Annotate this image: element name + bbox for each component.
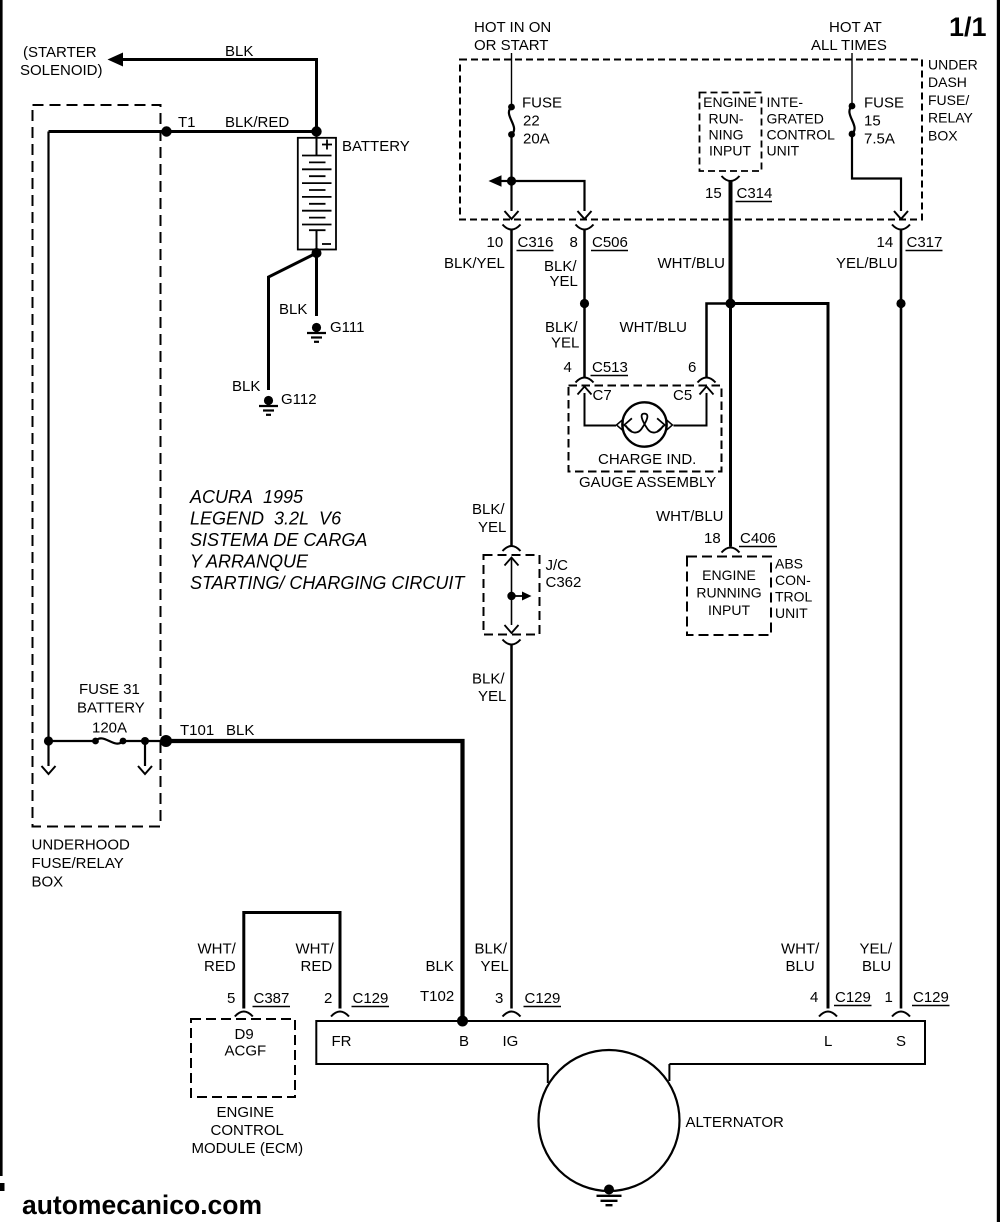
svg-text:BLK: BLK <box>426 958 454 975</box>
svg-text:NING: NING <box>709 127 744 143</box>
svg-text:G112: G112 <box>281 391 317 408</box>
svg-text:BOX: BOX <box>928 128 958 144</box>
svg-text:BLK: BLK <box>279 301 307 318</box>
svg-text:BLK/: BLK/ <box>472 671 505 688</box>
svg-text:4: 4 <box>810 989 818 1006</box>
svg-text:SOLENOID): SOLENOID) <box>20 62 103 79</box>
svg-text:BLU: BLU <box>862 958 891 975</box>
svg-text:C406: C406 <box>740 530 776 547</box>
svg-text:YEL/BLU: YEL/BLU <box>836 255 898 272</box>
svg-text:automecanico.com: automecanico.com <box>22 1190 262 1220</box>
svg-text:20A: 20A <box>523 131 550 148</box>
svg-text:C316: C316 <box>518 234 554 251</box>
svg-text:ENGINE: ENGINE <box>217 1104 275 1121</box>
svg-text:10: 10 <box>487 234 504 251</box>
svg-text:BLK/: BLK/ <box>472 501 505 518</box>
svg-text:T1: T1 <box>178 114 196 131</box>
svg-text:ACURA 1995: ACURA 1995 <box>189 487 304 507</box>
svg-text:YEL/: YEL/ <box>860 941 893 958</box>
svg-text:C387: C387 <box>254 990 290 1007</box>
svg-text:YEL: YEL <box>478 688 506 705</box>
svg-text:C129: C129 <box>525 990 561 1007</box>
svg-text:CON-: CON- <box>775 572 811 588</box>
svg-text:SISTEMA DE CARGA: SISTEMA DE CARGA <box>190 530 367 550</box>
svg-text:BLK/RED: BLK/RED <box>225 114 289 131</box>
svg-text:D9: D9 <box>235 1026 254 1043</box>
svg-text:ABS: ABS <box>775 556 803 572</box>
svg-text:BLK: BLK <box>225 43 253 60</box>
svg-text:FUSE: FUSE <box>864 95 904 112</box>
svg-text:ALL TIMES: ALL TIMES <box>811 37 887 54</box>
svg-text:FR: FR <box>332 1033 352 1050</box>
svg-text:RED: RED <box>204 958 236 975</box>
svg-text:WHT/: WHT/ <box>296 941 335 958</box>
svg-text:14: 14 <box>877 234 894 251</box>
svg-text:FUSE 31: FUSE 31 <box>79 681 140 698</box>
svg-text:C314: C314 <box>737 185 773 202</box>
svg-text:HOT AT: HOT AT <box>829 19 882 36</box>
svg-text:ALTERNATOR: ALTERNATOR <box>686 1114 785 1131</box>
svg-text:1: 1 <box>885 989 893 1006</box>
svg-text:ACGF: ACGF <box>225 1043 267 1060</box>
svg-text:UNDERHOOD: UNDERHOOD <box>32 837 131 854</box>
svg-text:OR START: OR START <box>474 37 548 54</box>
svg-text:BLK/: BLK/ <box>475 941 508 958</box>
svg-text:WHT/: WHT/ <box>198 941 237 958</box>
svg-text:(STARTER: (STARTER <box>23 44 97 61</box>
svg-text:UNIT: UNIT <box>767 143 800 159</box>
svg-text:CONTROL: CONTROL <box>211 1122 284 1139</box>
svg-text:FUSE: FUSE <box>522 95 562 112</box>
svg-text:T102: T102 <box>420 988 454 1005</box>
svg-text:YEL: YEL <box>550 273 578 290</box>
svg-text:7.5A: 7.5A <box>864 131 895 148</box>
svg-text:RUNNING: RUNNING <box>696 585 761 601</box>
svg-text:S: S <box>896 1033 906 1050</box>
svg-text:C5: C5 <box>673 387 692 404</box>
svg-text:YEL: YEL <box>551 335 579 352</box>
svg-text:18: 18 <box>704 530 721 547</box>
svg-text:BATTERY: BATTERY <box>77 700 145 717</box>
svg-text:C129: C129 <box>835 989 871 1006</box>
svg-text:Y ARRANQUE: Y ARRANQUE <box>190 552 309 572</box>
svg-text:C513: C513 <box>592 359 628 376</box>
svg-text:GAUGE ASSEMBLY: GAUGE ASSEMBLY <box>579 474 716 491</box>
svg-text:INTE-: INTE- <box>767 94 804 110</box>
svg-text:FUSE/RELAY: FUSE/RELAY <box>32 855 124 872</box>
svg-text:1/1: 1/1 <box>949 12 987 42</box>
svg-text:22: 22 <box>523 113 540 130</box>
svg-text:WHT/BLU: WHT/BLU <box>620 319 688 336</box>
svg-text:MODULE (ECM): MODULE (ECM) <box>192 1140 304 1157</box>
svg-text:BATTERY: BATTERY <box>342 138 410 155</box>
svg-text:C7: C7 <box>593 387 612 404</box>
svg-text:INPUT: INPUT <box>708 602 750 618</box>
svg-text:WHT/BLU: WHT/BLU <box>656 508 724 525</box>
svg-text:FUSE/: FUSE/ <box>928 92 969 108</box>
svg-text:YEL: YEL <box>481 958 509 975</box>
svg-text:L: L <box>824 1033 832 1050</box>
svg-text:G111: G111 <box>330 319 364 336</box>
svg-text:GRATED: GRATED <box>767 111 824 127</box>
svg-text:RUN-: RUN- <box>709 111 744 127</box>
svg-text:WHT/BLU: WHT/BLU <box>658 255 726 272</box>
svg-text:RELAY: RELAY <box>928 110 974 126</box>
svg-text:4: 4 <box>564 359 572 376</box>
svg-text:INPUT: INPUT <box>709 143 751 159</box>
svg-text:3: 3 <box>495 990 503 1007</box>
svg-text:HOT IN ON: HOT IN ON <box>474 19 551 36</box>
svg-text:15: 15 <box>705 185 722 202</box>
svg-text:CHARGE IND.: CHARGE IND. <box>598 451 696 468</box>
svg-text:RED: RED <box>301 958 333 975</box>
svg-text:UNDER: UNDER <box>928 57 978 73</box>
svg-text:BLK: BLK <box>226 722 254 739</box>
svg-text:15: 15 <box>864 113 881 130</box>
svg-text:CONTROL: CONTROL <box>767 127 836 143</box>
svg-text:B: B <box>459 1033 469 1050</box>
svg-text:WHT/: WHT/ <box>781 941 820 958</box>
svg-text:C317: C317 <box>907 234 943 251</box>
svg-text:6: 6 <box>688 359 696 376</box>
svg-text:LEGEND 3.2L V6: LEGEND 3.2L V6 <box>190 509 342 529</box>
svg-text:YEL: YEL <box>478 519 506 536</box>
svg-text:IG: IG <box>503 1033 519 1050</box>
svg-text:8: 8 <box>570 234 578 251</box>
svg-text:C129: C129 <box>913 989 949 1006</box>
svg-text:DASH: DASH <box>928 74 967 90</box>
svg-text:5: 5 <box>227 990 235 1007</box>
svg-text:ENGINE: ENGINE <box>703 94 757 110</box>
svg-text:BOX: BOX <box>32 874 64 891</box>
svg-text:TROL: TROL <box>775 589 813 605</box>
svg-text:BLK/: BLK/ <box>545 319 578 336</box>
svg-text:BLK/YEL: BLK/YEL <box>444 255 505 272</box>
svg-text:UNIT: UNIT <box>775 605 808 621</box>
svg-text:ENGINE: ENGINE <box>702 567 756 583</box>
svg-text:T101: T101 <box>180 722 214 739</box>
svg-text:BLU: BLU <box>786 958 815 975</box>
svg-text:J/C: J/C <box>546 557 569 574</box>
svg-text:120A: 120A <box>92 720 127 737</box>
svg-text:C506: C506 <box>592 234 628 251</box>
svg-text:C129: C129 <box>353 990 389 1007</box>
svg-text:STARTING/ CHARGING CIRCUIT: STARTING/ CHARGING CIRCUIT <box>190 573 466 593</box>
svg-text:2: 2 <box>324 990 332 1007</box>
svg-text:BLK: BLK <box>232 378 260 395</box>
svg-text:C362: C362 <box>546 574 582 591</box>
